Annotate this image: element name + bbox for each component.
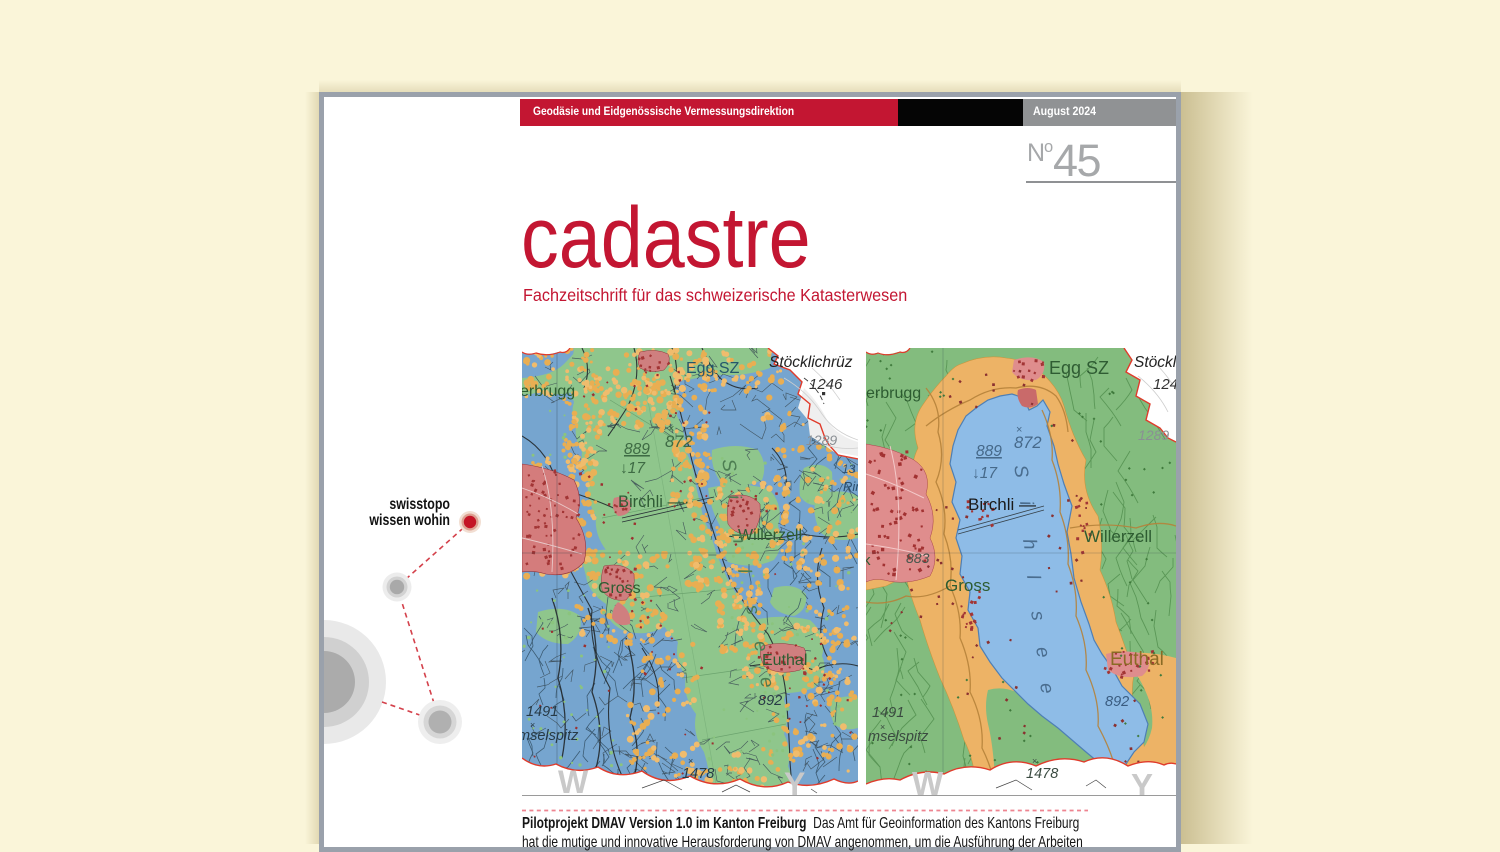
svg-text:Birchli —·: Birchli —·	[618, 493, 690, 511]
svg-text:×: ×	[668, 423, 674, 435]
svg-text:1491: 1491	[872, 705, 904, 721]
svg-text:1289: 1289	[806, 432, 837, 448]
svg-text:Gross: Gross	[598, 580, 641, 597]
svg-text:Willerzell: Willerzell	[1084, 527, 1152, 546]
svg-text:↓17: ↓17	[972, 465, 998, 482]
svg-text:Euthal: Euthal	[1110, 649, 1164, 670]
svg-text:Stöcklich: Stöcklich	[1134, 354, 1176, 371]
svg-text:1491: 1491	[526, 704, 558, 720]
svg-text:892: 892	[758, 693, 782, 709]
svg-text:872: 872	[665, 433, 693, 451]
svg-text:883: 883	[906, 550, 930, 566]
svg-text:Egg SZ: Egg SZ	[1049, 358, 1109, 378]
svg-text:×: ×	[1032, 756, 1037, 766]
svg-text:W: W	[558, 764, 589, 795]
svg-text:1289: 1289	[1138, 427, 1169, 443]
svg-text:Rin: Rin	[843, 479, 858, 494]
svg-text:872: 872	[1014, 434, 1042, 452]
svg-text:×: ×	[688, 756, 693, 766]
svg-text:erbrugg: erbrugg	[522, 383, 575, 400]
svg-text:13: 13	[842, 462, 856, 476]
svg-text:889: 889	[976, 443, 1002, 460]
svg-text:mselspitz: mselspitz	[522, 728, 579, 744]
svg-text:Stöcklichrüz: Stöcklichrüz	[769, 354, 853, 371]
svg-text:↓17: ↓17	[620, 460, 646, 477]
svg-text:Y: Y	[784, 766, 805, 795]
svg-text:mselspitz: mselspitz	[868, 729, 929, 745]
svg-text:W: W	[912, 765, 944, 795]
svg-text:1246: 1246	[809, 376, 843, 393]
svg-text:1478: 1478	[682, 766, 714, 782]
svg-text:×: ×	[1016, 424, 1022, 436]
svg-text:Gross: Gross	[945, 576, 990, 595]
svg-text:erbrugg: erbrugg	[866, 385, 921, 402]
svg-text:892: 892	[1105, 694, 1129, 710]
svg-text:k: k	[866, 552, 871, 569]
svg-text:124: 124	[1153, 376, 1176, 393]
svg-text:Egg SZ: Egg SZ	[686, 360, 740, 377]
svg-text:Euthal: Euthal	[762, 652, 807, 669]
svg-text:1478: 1478	[1026, 766, 1058, 782]
svg-text:889: 889	[624, 441, 650, 458]
svg-text:Y: Y	[1131, 767, 1153, 795]
